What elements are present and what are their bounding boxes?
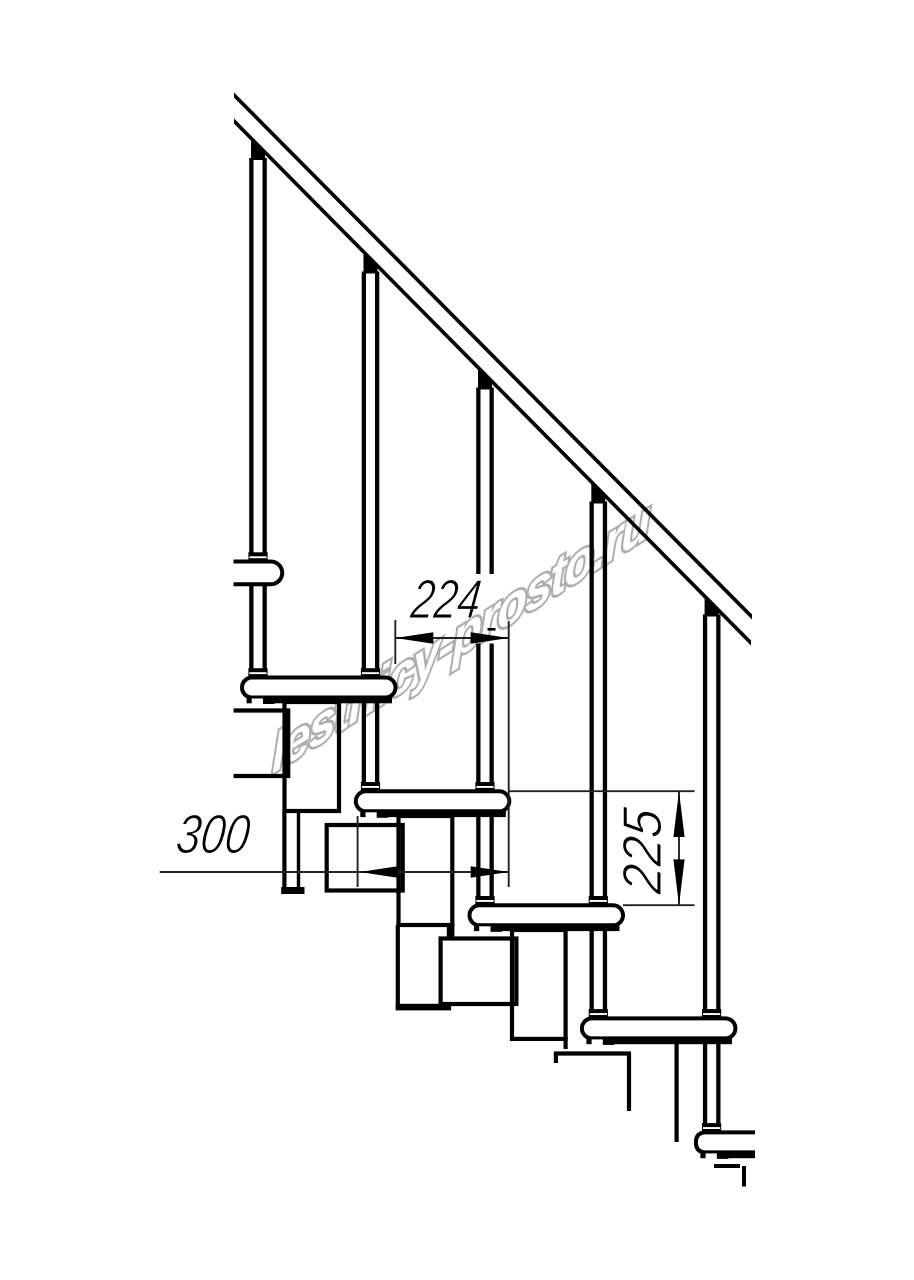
svg-text:300: 300 [173,803,254,865]
svg-text:225: 225 [611,805,673,898]
svg-text:224: 224 [407,568,484,630]
